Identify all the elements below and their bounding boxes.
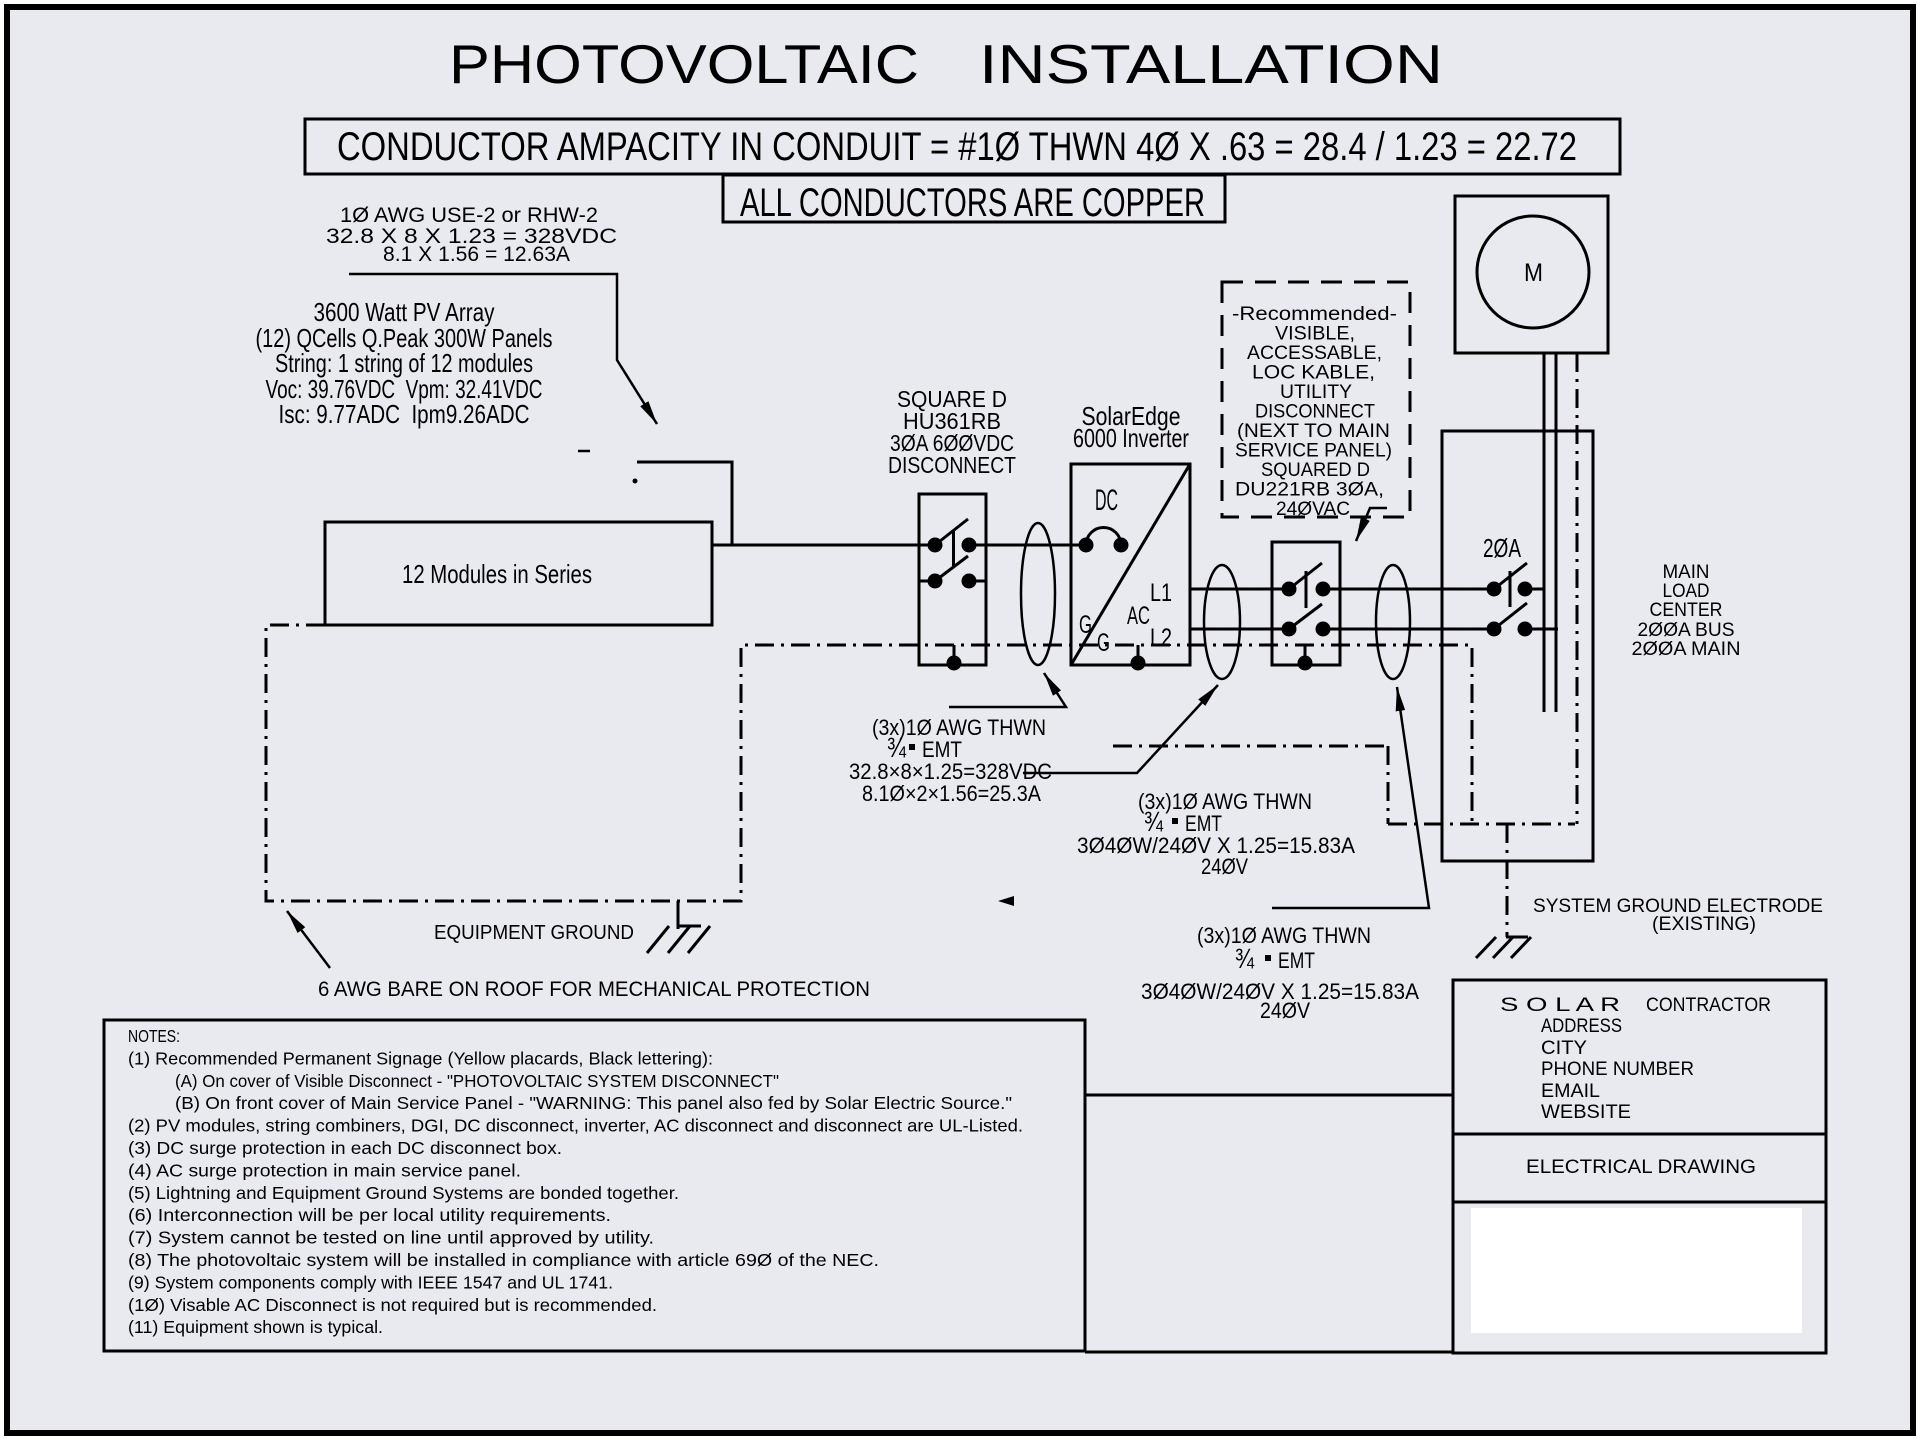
svg-text:24ØV: 24ØV bbox=[1201, 854, 1248, 879]
svg-text:(4) AC surge protection in mai: (4) AC surge protection in main service … bbox=[128, 1160, 521, 1180]
svg-text:8.1Ø×2×1.56=25.3A: 8.1Ø×2×1.56=25.3A bbox=[862, 781, 1041, 806]
svg-text:DISCONNECT: DISCONNECT bbox=[888, 452, 1016, 478]
svg-text:SQUARED D: SQUARED D bbox=[1261, 460, 1370, 481]
svg-text:CONDUCTOR AMPACITY IN CONDUIT: CONDUCTOR AMPACITY IN CONDUIT = #1Ø THWN… bbox=[337, 125, 1577, 169]
svg-text:NOTES:: NOTES: bbox=[128, 1026, 180, 1046]
svg-text:INSTALLATION: INSTALLATION bbox=[979, 33, 1443, 95]
svg-text:M: M bbox=[1524, 259, 1543, 287]
svg-text:(11) Equipment shown is typica: (11) Equipment shown is typical. bbox=[128, 1317, 383, 1337]
svg-text:MAIN: MAIN bbox=[1663, 562, 1710, 583]
svg-text:1Ø AWG USE-2 or RHW-2: 1Ø AWG USE-2 or RHW-2 bbox=[340, 204, 598, 227]
svg-text:DU221RB 3ØA,: DU221RB 3ØA, bbox=[1235, 480, 1384, 501]
svg-text:(EXISTING): (EXISTING) bbox=[1652, 914, 1756, 935]
svg-text:6000 Inverter: 6000 Inverter bbox=[1073, 423, 1189, 453]
svg-text:8.1 X 1.56 = 12.63A: 8.1 X 1.56 = 12.63A bbox=[383, 243, 570, 266]
svg-text:(1) Recommended Permanent Sign: (1) Recommended Permanent Signage (Yello… bbox=[128, 1048, 713, 1068]
svg-text:(6) Interconnection will be pe: (6) Interconnection will be per local ut… bbox=[128, 1205, 611, 1225]
svg-text:PHONE NUMBER: PHONE NUMBER bbox=[1541, 1059, 1694, 1080]
svg-text:G: G bbox=[1079, 611, 1092, 639]
svg-text:Isc: 9.77ADC Ipm9.26ADC: Isc: 9.77ADC Ipm9.26ADC bbox=[279, 399, 530, 429]
svg-text:G: G bbox=[1097, 629, 1110, 657]
svg-text:6 AWG BARE ON ROOF FOR MECHANI: 6 AWG BARE ON ROOF FOR MECHANICAL PROTEC… bbox=[318, 978, 870, 1001]
svg-text:EMAIL: EMAIL bbox=[1541, 1081, 1600, 1102]
svg-text:ACCESSABLE,: ACCESSABLE, bbox=[1247, 343, 1382, 364]
svg-text:24ØVAC: 24ØVAC bbox=[1276, 499, 1350, 520]
svg-text:CITY: CITY bbox=[1541, 1038, 1587, 1059]
svg-text:EMT: EMT bbox=[1278, 948, 1315, 973]
svg-text:(5) Lightning and Equipment Gr: (5) Lightning and Equipment Ground Syste… bbox=[128, 1183, 679, 1203]
svg-text:PHOTOVOLTAIC: PHOTOVOLTAIC bbox=[449, 33, 919, 95]
svg-text:24ØV: 24ØV bbox=[1260, 998, 1310, 1023]
svg-text:(9) System components comply w: (9) System components comply with IEEE 1… bbox=[128, 1272, 613, 1292]
svg-text:2ØØA BUS: 2ØØA BUS bbox=[1638, 620, 1735, 641]
svg-text:AC: AC bbox=[1127, 602, 1150, 630]
svg-text:12 Modules in Series: 12 Modules in Series bbox=[402, 559, 592, 589]
svg-text:(3x)1Ø AWG THWN: (3x)1Ø AWG THWN bbox=[1138, 789, 1312, 814]
svg-text:UTILITY: UTILITY bbox=[1280, 382, 1352, 403]
svg-text:2ØØA MAIN: 2ØØA MAIN bbox=[1632, 639, 1741, 660]
svg-text:(1Ø) Visable AC Disconnect is: (1Ø) Visable AC Disconnect is not requir… bbox=[128, 1295, 657, 1315]
svg-text:(A) On cover of Visible Discon: (A) On cover of Visible Disconnect - "PH… bbox=[175, 1071, 779, 1091]
svg-text:(7) System cannot be tested on: (7) System cannot be tested on line unti… bbox=[128, 1228, 654, 1248]
svg-text:EQUIPMENT GROUND: EQUIPMENT GROUND bbox=[434, 922, 634, 944]
svg-text:ADDRESS: ADDRESS bbox=[1541, 1016, 1622, 1037]
svg-text:¾: ¾ bbox=[1235, 943, 1255, 974]
svg-text:LOC KABLE,: LOC KABLE, bbox=[1252, 363, 1375, 384]
svg-text:ELECTRICAL DRAWING: ELECTRICAL DRAWING bbox=[1526, 1157, 1756, 1178]
svg-text:-Recommended-: -Recommended- bbox=[1232, 304, 1397, 325]
svg-text:(2) PV modules, string combine: (2) PV modules, string combiners, DGI, D… bbox=[128, 1116, 1023, 1136]
svg-text:CONTRACTOR: CONTRACTOR bbox=[1646, 995, 1771, 1016]
svg-text:(NEXT TO MAIN: (NEXT TO MAIN bbox=[1237, 421, 1390, 442]
svg-text:LOAD: LOAD bbox=[1663, 581, 1710, 602]
svg-text:SERVICE PANEL): SERVICE PANEL) bbox=[1235, 441, 1392, 462]
svg-text:VISIBLE,: VISIBLE, bbox=[1275, 324, 1355, 345]
svg-text:DC: DC bbox=[1095, 484, 1118, 517]
svg-text:2ØA: 2ØA bbox=[1483, 533, 1521, 563]
svg-text:(B) On front cover of Main Ser: (B) On front cover of Main Service Panel… bbox=[175, 1093, 1012, 1113]
svg-text:L1: L1 bbox=[1150, 579, 1172, 607]
svg-text:S O L A R: S O L A R bbox=[1500, 995, 1620, 1016]
svg-text:L2: L2 bbox=[1150, 624, 1172, 652]
svg-text:WEBSITE: WEBSITE bbox=[1541, 1102, 1631, 1123]
svg-text:(8) The photovoltaic system wi: (8) The photovoltaic system will be inst… bbox=[128, 1250, 879, 1270]
svg-text:CENTER: CENTER bbox=[1650, 600, 1723, 621]
svg-text:(3) DC surge protection in eac: (3) DC surge protection in each DC disco… bbox=[128, 1138, 562, 1158]
svg-text:DISCONNECT: DISCONNECT bbox=[1255, 402, 1375, 423]
svg-text:(3x)1Ø AWG THWN: (3x)1Ø AWG THWN bbox=[1197, 923, 1371, 948]
svg-text:ALL CONDUCTORS ARE COPPER: ALL CONDUCTORS ARE COPPER bbox=[740, 181, 1205, 225]
